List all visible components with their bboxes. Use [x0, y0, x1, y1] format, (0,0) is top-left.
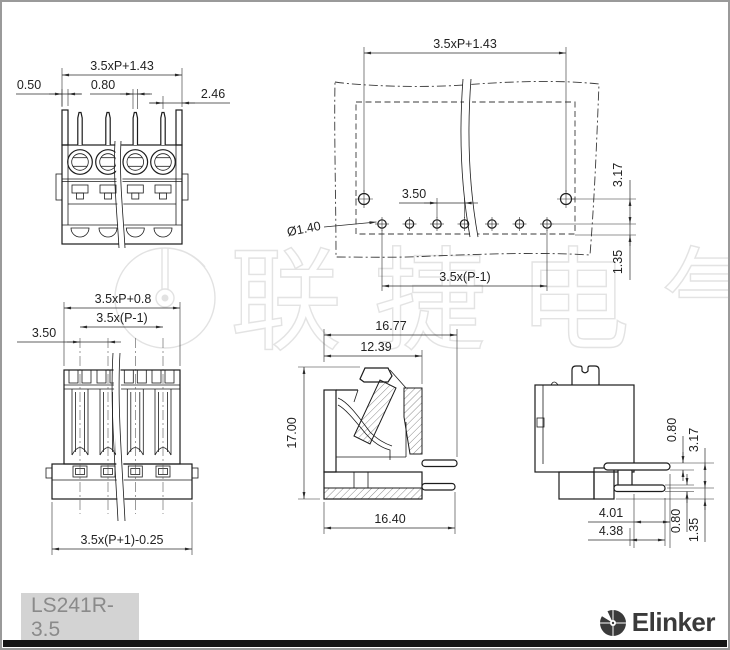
left-wall	[62, 110, 68, 145]
dim-pcb-edge: 1.35	[611, 250, 625, 274]
dim-front-total-width: 3.5xP+1.43	[90, 59, 154, 73]
watermark-text: 联捷电气	[230, 239, 730, 364]
front-view-dimensions: 3.5xP+1.43 0.50 0.80 2.46	[16, 59, 230, 109]
side-view: 0.80 3.17 0.80 1.35 4.01	[535, 366, 714, 548]
dim-front-end: 2.46	[201, 87, 225, 101]
latch-claw	[572, 366, 599, 385]
section-lower-pin	[422, 484, 455, 491]
dim-top-flange: 3.5x(P+1)-0.25	[80, 533, 163, 547]
lower-pin	[614, 485, 665, 492]
front-view: 3.5xP+1.43 0.50 0.80 2.46	[16, 59, 230, 248]
top-view-dimensions: 3.5xP+0.8 3.5x(P-1) 3.50 3.5x(P+1)-0.25	[17, 292, 192, 555]
model-label-box: LS241R-3.5	[21, 593, 139, 643]
right-latch	[182, 174, 188, 200]
section-left-wall	[324, 390, 336, 472]
pin-holes	[375, 217, 554, 231]
brand-name: Elinker	[632, 607, 715, 638]
dim-front-wall: 0.50	[17, 78, 41, 92]
brand-logo: Elinker	[597, 606, 715, 638]
model-number: LS241R-3.5	[31, 594, 139, 642]
upper-pin	[604, 463, 670, 470]
section-upper-pin	[422, 460, 457, 467]
elinker-logo-icon	[597, 606, 629, 638]
dim-section-depth-total: 16.77	[375, 319, 406, 333]
dim-side-edge: 1.35	[687, 518, 701, 542]
actuator-wedge	[354, 380, 396, 444]
side-body	[535, 385, 634, 472]
pin-block	[594, 468, 614, 499]
dim-pcb-row-gap: 3.17	[611, 163, 625, 187]
left-latch	[56, 174, 62, 200]
dim-top-span: 3.5x(P-1)	[96, 311, 147, 325]
dim-side-pin-thick-lower: 0.80	[669, 509, 683, 533]
dim-pcb-span: 3.5x(P-1)	[439, 270, 490, 284]
dim-pcb-hole-dia: Ø1.40	[286, 219, 322, 239]
top-view: 3.5xP+0.8 3.5x(P-1) 3.50 3.5x(P+1)-0.25	[17, 292, 198, 555]
solder-pins	[78, 113, 165, 146]
dim-section-depth-lower: 16.40	[374, 512, 405, 526]
drawing-sheet: 联捷电气	[0, 0, 730, 650]
dim-front-pin-width: 0.80	[91, 78, 115, 92]
dim-section-depth-upper: 12.39	[360, 340, 391, 354]
dim-pcb-total-width: 3.5xP+1.43	[433, 37, 497, 51]
dim-top-body-width: 3.5xP+0.8	[95, 292, 152, 306]
technical-drawing: 联捷电气	[2, 2, 730, 650]
base-block	[559, 472, 594, 499]
dim-top-pitch: 3.50	[32, 326, 56, 340]
section-right-wall	[404, 388, 422, 454]
side-view-dimensions: 0.80 3.17 0.80 1.35 4.01	[588, 418, 714, 548]
dim-pcb-pitch: 3.50	[402, 187, 426, 201]
dim-side-pin-len-upper: 4.01	[599, 506, 623, 520]
dim-side-pin-thick-upper: 0.80	[665, 418, 679, 442]
bottom-bar	[3, 640, 727, 647]
dim-side-row-gap: 3.17	[687, 428, 701, 452]
right-wall	[176, 110, 182, 145]
dim-section-height: 17.00	[285, 417, 299, 448]
actuator-cap	[360, 368, 392, 382]
dim-side-pin-len-lower: 4.38	[599, 524, 623, 538]
